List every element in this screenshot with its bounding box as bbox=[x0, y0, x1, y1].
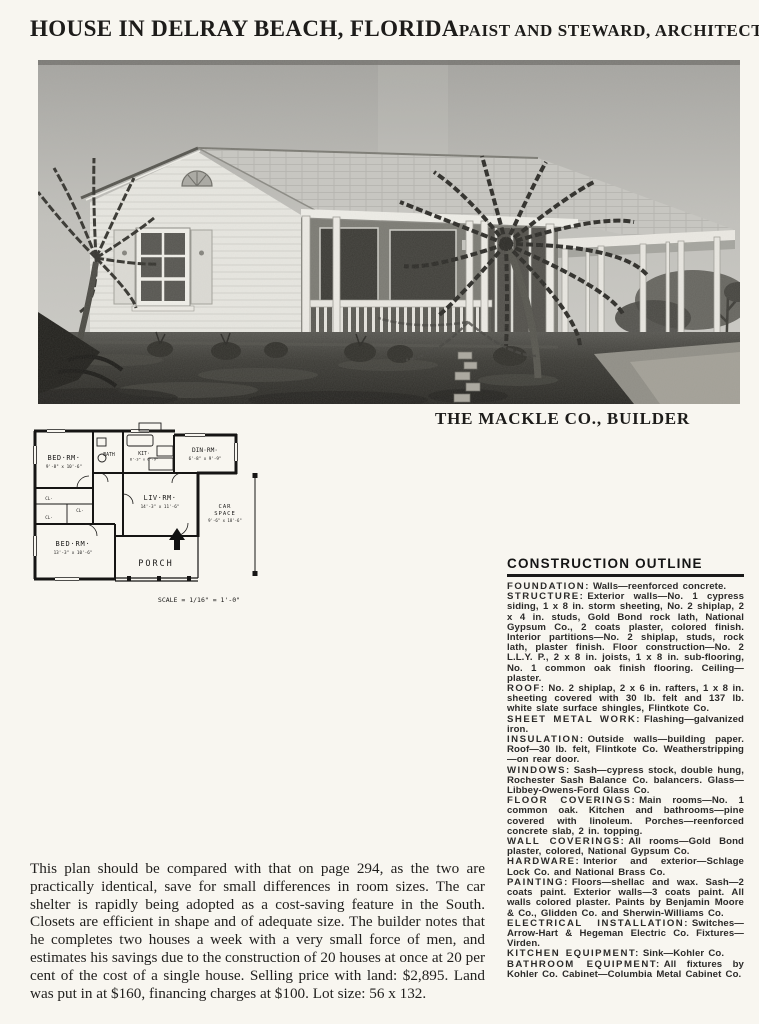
room-label-bedroom1: BED·RM· bbox=[47, 454, 80, 462]
room-dims-bedroom1: 9'-8" x 10'-6" bbox=[46, 464, 82, 470]
construction-item: BATHROOM EQUIPMENT:All fixtures by Kohle… bbox=[507, 960, 744, 980]
room-dims-dining: 6'-8" x 9'-9" bbox=[189, 456, 222, 461]
floor-plan-drawing: BED·RM· 9'-8" x 10'-6" BATH KIT· 8'-3" x… bbox=[27, 416, 265, 612]
construction-item: INSULATION:Outside walls—building paper.… bbox=[507, 735, 744, 766]
construction-outline-heading: CONSTRUCTION OUTLINE bbox=[507, 556, 744, 577]
construction-outline: CONSTRUCTION OUTLINE FOUNDATION:Walls—re… bbox=[507, 556, 744, 980]
room-label-bedroom2: BED·RM· bbox=[55, 540, 90, 548]
construction-item: WALL COVERINGS:All rooms—Gold Bond plast… bbox=[507, 837, 744, 857]
closet-label-1: CL· bbox=[45, 496, 53, 501]
construction-item: STRUCTURE:Exterior walls—No. 1 cypress s… bbox=[507, 592, 744, 684]
car-space-dims: 9'-6" x 18'-6" bbox=[208, 518, 242, 523]
room-dims-living: 14'-3" x 11'-6" bbox=[141, 504, 180, 510]
closet-label-2: CL· bbox=[76, 508, 84, 513]
room-label-kitchen: KIT· bbox=[138, 451, 150, 457]
room-dims-kitchen: 8'-3" x 6'-9" bbox=[130, 458, 158, 462]
photo-caption: THE MACKLE CO., BUILDER bbox=[405, 409, 720, 429]
construction-item-text: Exterior walls—No. 1 cypress siding, 1 x… bbox=[507, 591, 744, 684]
plan-scale: SCALE = 1/16" = 1'-0" bbox=[158, 596, 240, 604]
room-label-porch: PORCH bbox=[138, 559, 174, 569]
room-label-bath: BATH bbox=[103, 452, 115, 458]
architects-credit: PAIST AND STEWARD, ARCHITECTS bbox=[459, 21, 759, 41]
house-photo bbox=[38, 60, 740, 404]
page-title: HOUSE IN DELRAY BEACH, FLORIDA bbox=[30, 16, 459, 42]
page-header: HOUSE IN DELRAY BEACH, FLORIDA PAIST AND… bbox=[30, 16, 737, 42]
construction-item: ELECTRICAL INSTALLATION:Switches—Arrow-H… bbox=[507, 919, 744, 950]
room-label-living: LIV·RM· bbox=[143, 494, 176, 502]
construction-item: HARDWARE:Interior and exterior—Schlage L… bbox=[507, 857, 744, 877]
construction-item: SHEET METAL WORK:Flashing—galvanized iro… bbox=[507, 715, 744, 735]
description-paragraph: This plan should be compared with that o… bbox=[30, 860, 485, 1002]
construction-item: ROOF:No. 2 shiplap, 2 x 6 in. rafters, 1… bbox=[507, 684, 744, 715]
construction-item: FLOOR COVERINGS:Main rooms—No. 1 common … bbox=[507, 796, 744, 837]
floor-plan: BED·RM· 9'-8" x 10'-6" BATH KIT· 8'-3" x… bbox=[27, 416, 265, 612]
closet-label-3: CL· bbox=[45, 515, 53, 520]
room-dims-bedroom2: 13'-3" x 10'-6" bbox=[54, 550, 93, 556]
house-photo-illustration bbox=[38, 60, 740, 404]
book-page: HOUSE IN DELRAY BEACH, FLORIDA PAIST AND… bbox=[0, 0, 759, 1024]
car-space-line2: SPACE bbox=[214, 511, 236, 517]
construction-item: WINDOWS:Sash—cypress stock, double hung,… bbox=[507, 766, 744, 797]
construction-item-label: KITCHEN EQUIPMENT: bbox=[507, 948, 640, 959]
car-space-line1: CAR bbox=[219, 504, 232, 510]
room-label-dining: DIN·RM· bbox=[192, 447, 218, 454]
construction-item: PAINTING:Floors—shellac and wax. Sash—2 … bbox=[507, 878, 744, 919]
